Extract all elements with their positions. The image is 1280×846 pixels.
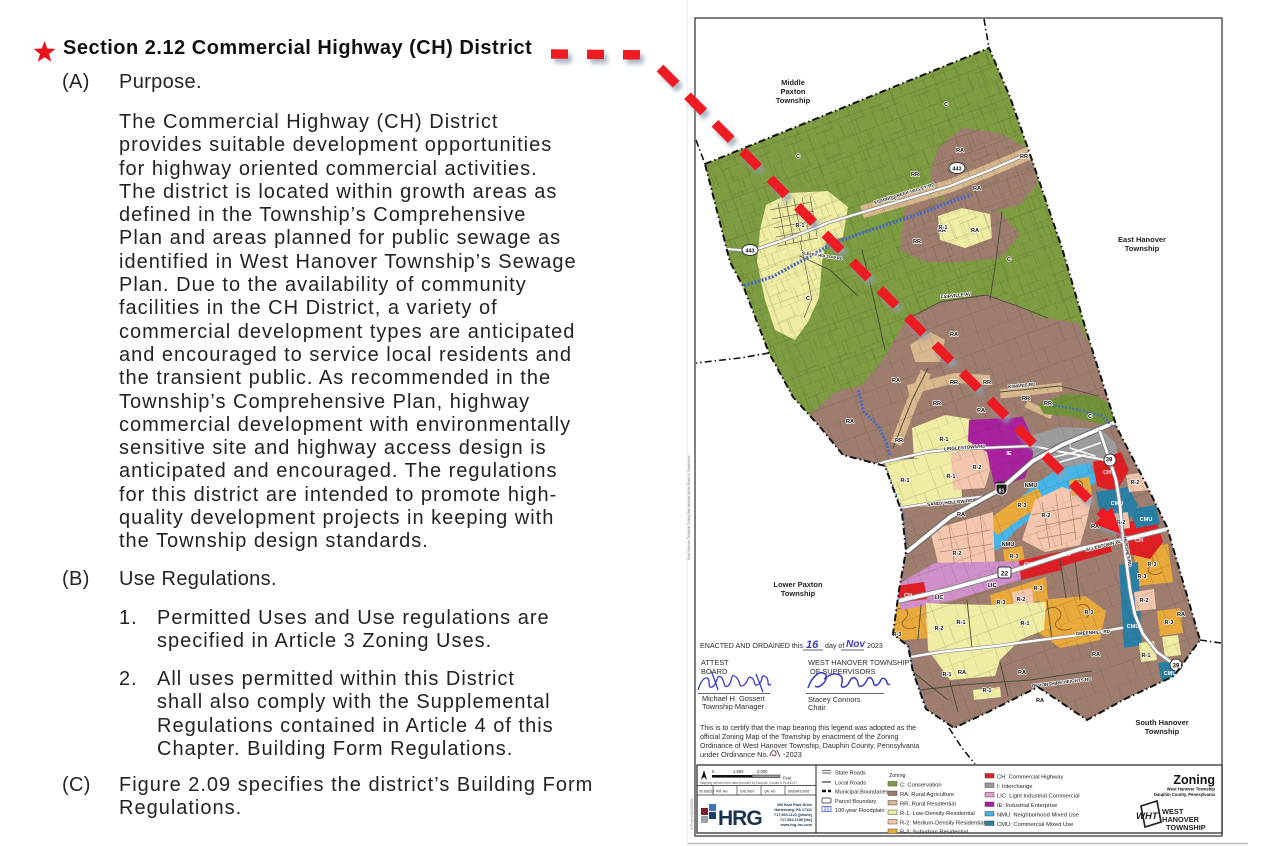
- svg-text:717.564.1158 [fax]: 717.564.1158 [fax]: [780, 818, 813, 822]
- svg-text:RR: Rural Residential: RR: Rural Residential: [900, 802, 956, 808]
- svg-text:WHT: WHT: [1136, 811, 1159, 822]
- svg-text:369 East Park Drive: 369 East Park Drive: [777, 803, 812, 807]
- svg-text:RR: RR: [933, 401, 941, 407]
- svg-text:BOARD: BOARD: [701, 667, 727, 676]
- svg-text:Township: Township: [1145, 727, 1180, 736]
- svg-text:RR: RR: [1022, 396, 1030, 402]
- svg-text:R-1: R-1: [939, 437, 948, 443]
- svg-text:RA: RA: [977, 408, 985, 414]
- svg-text:R-2: R-2: [934, 626, 943, 632]
- svg-text:CMU: CMU: [1111, 501, 1124, 507]
- svg-text:Paxton: Paxton: [780, 87, 805, 96]
- svg-text:39: 39: [1106, 458, 1113, 464]
- svg-text:R-1: R-1: [1020, 621, 1029, 627]
- svg-text:RA: RA: [846, 419, 854, 425]
- svg-text:IE: IE: [1006, 451, 1012, 457]
- svg-text:West Hanover Township: West Hanover Township: [1167, 787, 1216, 792]
- svg-text:RR: RR: [1044, 401, 1052, 407]
- svg-text:Township: Township: [1125, 244, 1160, 253]
- svg-text:WEST HANOVER TOWNSHIP: WEST HANOVER TOWNSHIP: [808, 658, 909, 667]
- svg-text:RR: RR: [950, 380, 958, 386]
- svg-text:CMU: Commercial Mixed Use: CMU: Commercial Mixed Use: [997, 822, 1073, 828]
- svg-text:Dauphin County, Pennsylvania: Dauphin County, Pennsylvania: [1154, 792, 1216, 797]
- svg-text:RR: RR: [913, 239, 921, 245]
- svg-text:RA: RA: [971, 228, 979, 234]
- svg-text:TOWNSHIP: TOWNSHIP: [1166, 823, 1206, 832]
- svg-text:RA: RA: [1177, 612, 1185, 618]
- svg-text:443: 443: [952, 167, 961, 173]
- svg-text:R-3: R-3: [1009, 554, 1018, 560]
- svg-text:RA: RA: [1036, 698, 1044, 704]
- svg-text:16: 16: [806, 639, 819, 651]
- svg-text:OF SUPERVISORS: OF SUPERVISORS: [810, 667, 876, 676]
- svg-text:RR: RR: [895, 438, 903, 444]
- svg-text:NMU: NMU: [1025, 483, 1038, 489]
- svg-text:RA: RA: [956, 148, 964, 154]
- svg-text:CH: CH: [1135, 538, 1143, 544]
- svg-text:3,000: 3,000: [757, 769, 768, 774]
- svg-text:R-2: R-2: [1041, 513, 1050, 519]
- svg-text:www.hrg-inc.com: www.hrg-inc.com: [779, 823, 812, 827]
- svg-text:This is to certify that the ma: This is to certify that the map bearing …: [700, 724, 916, 732]
- svg-text:CMU: CMU: [1127, 624, 1140, 630]
- svg-text:R-3: R-3: [1137, 574, 1146, 580]
- svg-text:R-2: R-2: [1130, 480, 1139, 486]
- svg-text:RA: RA: [1018, 670, 1026, 676]
- svg-text:ATTEST: ATTEST: [701, 658, 729, 667]
- svg-text:official Zoning Map of the Tow: official Zoning Map of the Township by e…: [700, 733, 899, 741]
- svg-text:CH: CH: [904, 593, 912, 599]
- svg-text:R-3: R-3: [1147, 562, 1156, 568]
- svg-text:CH: CH: [1103, 470, 1111, 476]
- svg-text:QA: AG: QA: AG: [764, 789, 776, 793]
- svg-text:G:\Projects\0943\0001: G:\Projects\0943\0001: [690, 798, 694, 830]
- svg-text:RA: Rural Agriculture: RA: Rural Agriculture: [900, 792, 954, 798]
- svg-text:Zoning: Zoning: [889, 773, 905, 779]
- svg-text:LIC: LIC: [987, 583, 996, 589]
- svg-text:Local Roads: Local Roads: [835, 781, 866, 787]
- svg-text:CH: Commercial Highway: CH: Commercial Highway: [997, 775, 1063, 781]
- svg-text:Parcel Boundary: Parcel Boundary: [835, 799, 877, 805]
- svg-text:Township: Township: [776, 96, 811, 105]
- svg-text:ENACTED AND ORDAINED this: ENACTED AND ORDAINED this: [700, 642, 803, 650]
- svg-text:RA: RA: [950, 332, 958, 338]
- svg-text:South Hanover: South Hanover: [1135, 718, 1188, 727]
- svg-text:RR: RR: [911, 172, 919, 178]
- svg-text:100-year Floodplain: 100-year Floodplain: [835, 808, 884, 814]
- svg-text:LIC: Light Industrial Commerci: LIC: Light Industrial Commercial: [997, 794, 1079, 800]
- svg-text:Mapping derived from data prov: Mapping derived from data provided by Da…: [700, 781, 797, 785]
- svg-text:C: C: [796, 154, 800, 160]
- svg-text:RR: RR: [983, 380, 991, 386]
- svg-text:CMU: CMU: [1164, 671, 1177, 677]
- svg-text:C: C: [1007, 257, 1011, 263]
- svg-text:9/19/2023: 9/19/2023: [699, 789, 714, 793]
- svg-text:2023: 2023: [867, 642, 883, 650]
- svg-text:8000943.0001: 8000943.0001: [788, 789, 810, 793]
- svg-text:R-2: R-2: [972, 465, 981, 471]
- svg-text:CH: CH: [1062, 552, 1070, 558]
- svg-text:CH: CH: [1024, 562, 1032, 568]
- svg-text:1,500: 1,500: [733, 769, 744, 774]
- svg-text:R-3: Suburban Residential: R-3: Suburban Residential: [900, 830, 968, 836]
- svg-text:Middle: Middle: [781, 78, 805, 87]
- svg-text:Lower Paxton: Lower Paxton: [773, 580, 823, 589]
- svg-text:RA: RA: [892, 378, 900, 384]
- svg-text:Feet: Feet: [783, 776, 792, 781]
- svg-text:R-1: R-1: [795, 223, 804, 229]
- svg-text:East Hanover: East Hanover: [1118, 235, 1166, 244]
- svg-text:I: Interchange: I: Interchange: [997, 784, 1032, 790]
- svg-text:R-3: R-3: [1033, 586, 1042, 592]
- svg-text:RA: RA: [1092, 652, 1100, 658]
- svg-text:-2023: -2023: [783, 750, 802, 759]
- svg-text:R-2: R-2: [1139, 598, 1148, 604]
- svg-text:C: C: [1088, 414, 1092, 420]
- svg-text:R-3: R-3: [1084, 610, 1093, 616]
- svg-text:RA: RA: [958, 670, 966, 676]
- svg-text:22: 22: [1001, 571, 1009, 578]
- svg-text:Harrisburg, PA 17111: Harrisburg, PA 17111: [774, 808, 812, 812]
- svg-text:State Roads: State Roads: [835, 771, 866, 777]
- svg-text:PM: AG: PM: AG: [716, 789, 728, 793]
- svg-text:R-1: R-1: [900, 478, 909, 484]
- svg-text:R-1: R-1: [956, 620, 965, 626]
- svg-text:R-1: R-1: [946, 474, 955, 480]
- svg-text:LIC: LIC: [934, 595, 943, 601]
- svg-text:GIS: ADV: GIS: ADV: [740, 789, 755, 793]
- svg-text:R-1: Low-Density Residential: R-1: Low-Density Residential: [900, 811, 975, 817]
- svg-text:RA: RA: [957, 512, 965, 518]
- svg-text:Township: Township: [781, 589, 816, 598]
- svg-text:NMU: Neighborhood Mixed Use: NMU: Neighborhood Mixed Use: [997, 813, 1079, 819]
- svg-text:under Ordinance No.: under Ordinance No.: [700, 750, 769, 759]
- svg-text:C: C: [944, 102, 948, 108]
- svg-text:Township Manager: Township Manager: [702, 702, 765, 711]
- svg-text:R-1: R-1: [938, 225, 947, 231]
- svg-text:81: 81: [998, 489, 1004, 495]
- svg-text:HRG: HRG: [718, 807, 762, 830]
- svg-text:Nov: Nov: [846, 639, 866, 650]
- svg-text:443: 443: [745, 249, 754, 255]
- svg-text:IE: Industrial Enterprise: IE: Industrial Enterprise: [997, 803, 1057, 809]
- svg-text:R-3: R-3: [1164, 620, 1173, 626]
- svg-text:R-1: R-1: [942, 672, 951, 678]
- svg-text:day of: day of: [825, 642, 844, 650]
- svg-text:Ordinance of West Hanover Town: Ordinance of West Hanover Township, Daup…: [700, 742, 919, 750]
- svg-text:Zoning: Zoning: [1173, 773, 1215, 787]
- svg-text:C: C: [806, 296, 810, 302]
- svg-text:R-3: R-3: [996, 600, 1005, 606]
- svg-text:Municipal Boundaries: Municipal Boundaries: [835, 790, 889, 796]
- svg-text:R-2: Medium-Density Residentia: R-2: Medium-Density Residential: [900, 821, 985, 827]
- svg-text:R-2: R-2: [952, 551, 961, 557]
- svg-text:R-3: R-3: [1017, 503, 1026, 509]
- svg-text:R-2: R-2: [1016, 597, 1025, 603]
- svg-text:717.564.1121 [phone]: 717.564.1121 [phone]: [774, 813, 813, 817]
- svg-text:NMU: NMU: [1002, 542, 1015, 548]
- svg-text:R-1: R-1: [982, 688, 991, 694]
- svg-text:CMU: CMU: [1140, 517, 1153, 523]
- svg-text:R-1: R-1: [1141, 653, 1150, 659]
- svg-text:RR: RR: [1020, 154, 1028, 160]
- svg-text:Chair: Chair: [808, 703, 826, 712]
- svg-text:RA: RA: [973, 186, 981, 192]
- svg-text:West Hanover Township Zoning M: West Hanover Township Zoning Map adopted…: [687, 455, 691, 560]
- svg-text:C: Conservation: C: Conservation: [900, 783, 942, 789]
